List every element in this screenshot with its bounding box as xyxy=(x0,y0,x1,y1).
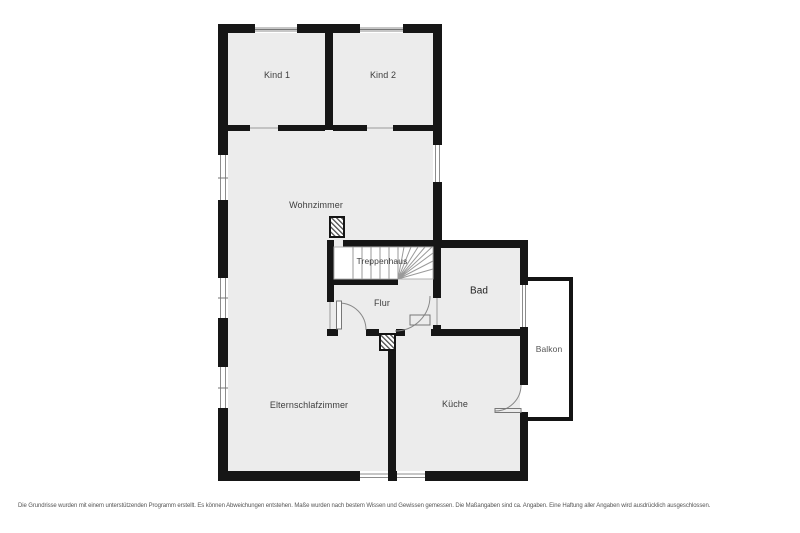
wall-segment xyxy=(433,325,441,336)
wall-segment xyxy=(343,240,442,247)
wall-segment xyxy=(218,125,250,131)
room-label-bad: Bad xyxy=(470,286,488,297)
window xyxy=(218,278,228,318)
window xyxy=(360,471,388,481)
wall-segment xyxy=(218,471,360,481)
window xyxy=(218,155,228,200)
chimney xyxy=(329,216,345,238)
window xyxy=(360,24,403,33)
chimney xyxy=(379,333,396,351)
room-label-wohnzimmer: Wohnzimmer xyxy=(289,200,343,210)
room-fill-lower xyxy=(218,336,528,471)
wall-segment xyxy=(327,240,334,302)
wall-segment xyxy=(520,240,528,285)
wall-segment xyxy=(333,125,367,131)
wall-segment xyxy=(366,329,379,336)
wall-segment xyxy=(327,279,398,285)
window xyxy=(218,367,228,408)
room-label-kueche: Küche xyxy=(442,399,468,409)
window xyxy=(255,24,297,33)
wall-segment xyxy=(433,248,441,298)
wall-segment xyxy=(396,329,405,336)
floorplan-canvas: Kind 1 Kind 2 Wohnzimmer Treppenhaus Flu… xyxy=(0,0,800,533)
room-label-balkon: Balkon xyxy=(536,344,563,354)
window xyxy=(397,471,425,481)
wall-segment xyxy=(297,24,360,33)
window xyxy=(520,285,528,327)
wall-segment xyxy=(520,412,528,481)
wall-segment xyxy=(425,471,528,481)
wall-segment xyxy=(327,329,338,336)
wall-segment xyxy=(431,329,528,336)
wall-segment xyxy=(218,24,228,155)
wall-segment xyxy=(325,33,333,130)
room-label-flur: Flur xyxy=(374,298,390,308)
window xyxy=(433,145,442,182)
wall-segment xyxy=(388,471,397,481)
room-label-treppenhaus: Treppenhaus xyxy=(357,256,408,266)
wall-segment xyxy=(218,318,228,367)
wall-segment xyxy=(433,240,528,248)
wall-segment xyxy=(388,348,396,471)
disclaimer-text: Die Grundrisse wurden mit einem unterstü… xyxy=(18,503,718,509)
wall-segment xyxy=(393,125,442,131)
wall-segment xyxy=(433,182,442,248)
wall-segment xyxy=(278,125,325,131)
room-label-elternschlafzimmer: Elternschlafzimmer xyxy=(270,400,348,410)
room-label-kind2: Kind 2 xyxy=(370,70,396,80)
wall-segment xyxy=(218,200,228,278)
room-label-kind1: Kind 1 xyxy=(264,70,290,80)
